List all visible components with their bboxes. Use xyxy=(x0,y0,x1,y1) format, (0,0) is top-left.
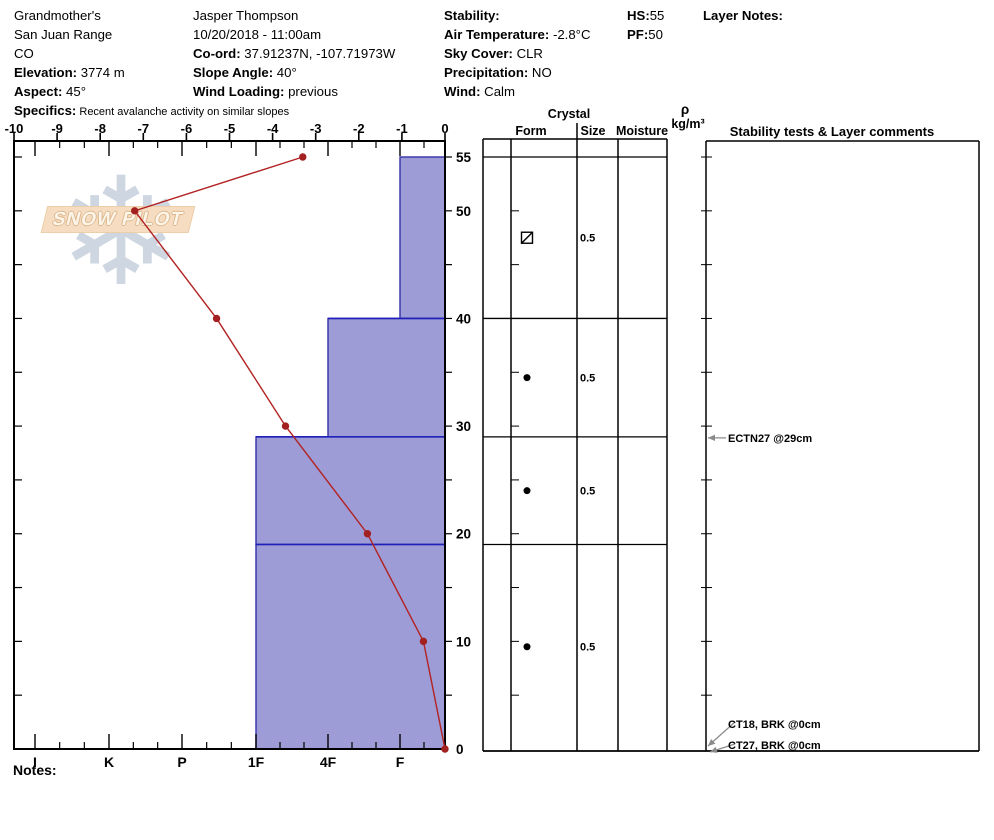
stability-test-label: ECTN27 @29cm xyxy=(728,433,812,445)
temperature-point xyxy=(420,638,427,645)
hardness-axis-label: 4F xyxy=(320,754,337,770)
grain-form-rounded-grains-icon xyxy=(524,374,531,381)
grain-size-value: 0.5 xyxy=(580,373,595,385)
temperature-point xyxy=(441,745,448,752)
depth-axis-label: 20 xyxy=(456,527,471,542)
temperature-point xyxy=(299,153,306,160)
depth-axis-label: 30 xyxy=(456,419,471,434)
temp-axis-label: -8 xyxy=(94,121,106,136)
hardness-axis-label: I xyxy=(33,754,37,770)
snowpit-report-page: Grandmother'sSan Juan RangeCOElevation: … xyxy=(0,0,994,840)
grain-form-rounded-grains-icon xyxy=(524,487,531,494)
temp-axis-label: -9 xyxy=(51,121,63,136)
stability-test-label: CT27, BRK @0cm xyxy=(728,740,821,752)
temperature-point xyxy=(364,530,371,537)
depth-axis-label: 55 xyxy=(456,150,472,165)
hardness-bar xyxy=(328,318,445,436)
profile-chart: -10-9-8-7-6-5-4-3-2-10IKP1F4FF5550403020… xyxy=(0,0,994,840)
temp-axis-label: -6 xyxy=(181,121,193,136)
temp-axis-label: -1 xyxy=(396,121,408,136)
temperature-point xyxy=(131,207,138,214)
grain-size-value: 0.5 xyxy=(580,486,595,498)
temp-axis-label: -10 xyxy=(5,121,24,136)
temp-axis-label: -7 xyxy=(138,121,150,136)
depth-axis-label: 40 xyxy=(456,311,471,326)
temp-axis-label: -4 xyxy=(267,121,279,136)
grain-size-value: 0.5 xyxy=(580,642,595,654)
grain-size-value: 0.5 xyxy=(580,233,595,245)
annotation-arrowhead xyxy=(710,747,718,753)
hardness-bar xyxy=(256,544,445,749)
hardness-axis-label: F xyxy=(396,754,405,770)
hardness-bar xyxy=(256,437,445,545)
temp-axis-label: -2 xyxy=(353,121,365,136)
annotation-arrowhead xyxy=(708,435,715,441)
stability-test-label: CT18, BRK @0cm xyxy=(728,719,821,731)
temp-axis-label: 0 xyxy=(441,121,448,136)
temp-axis-label: -5 xyxy=(224,121,236,136)
hardness-axis-label: P xyxy=(177,754,186,770)
temperature-point xyxy=(213,315,220,322)
hardness-axis-label: K xyxy=(104,754,114,770)
depth-axis-label: 10 xyxy=(456,634,471,649)
temperature-point xyxy=(282,422,289,429)
temp-axis-label: -3 xyxy=(310,121,322,136)
hardness-axis-label: 1F xyxy=(248,754,265,770)
grain-form-decomposed-fragments-icon xyxy=(522,232,533,243)
depth-axis-label: 50 xyxy=(456,204,471,219)
grain-form-rounded-grains-icon xyxy=(524,643,531,650)
depth-axis-label: 0 xyxy=(456,742,464,757)
hardness-bar xyxy=(400,157,445,318)
